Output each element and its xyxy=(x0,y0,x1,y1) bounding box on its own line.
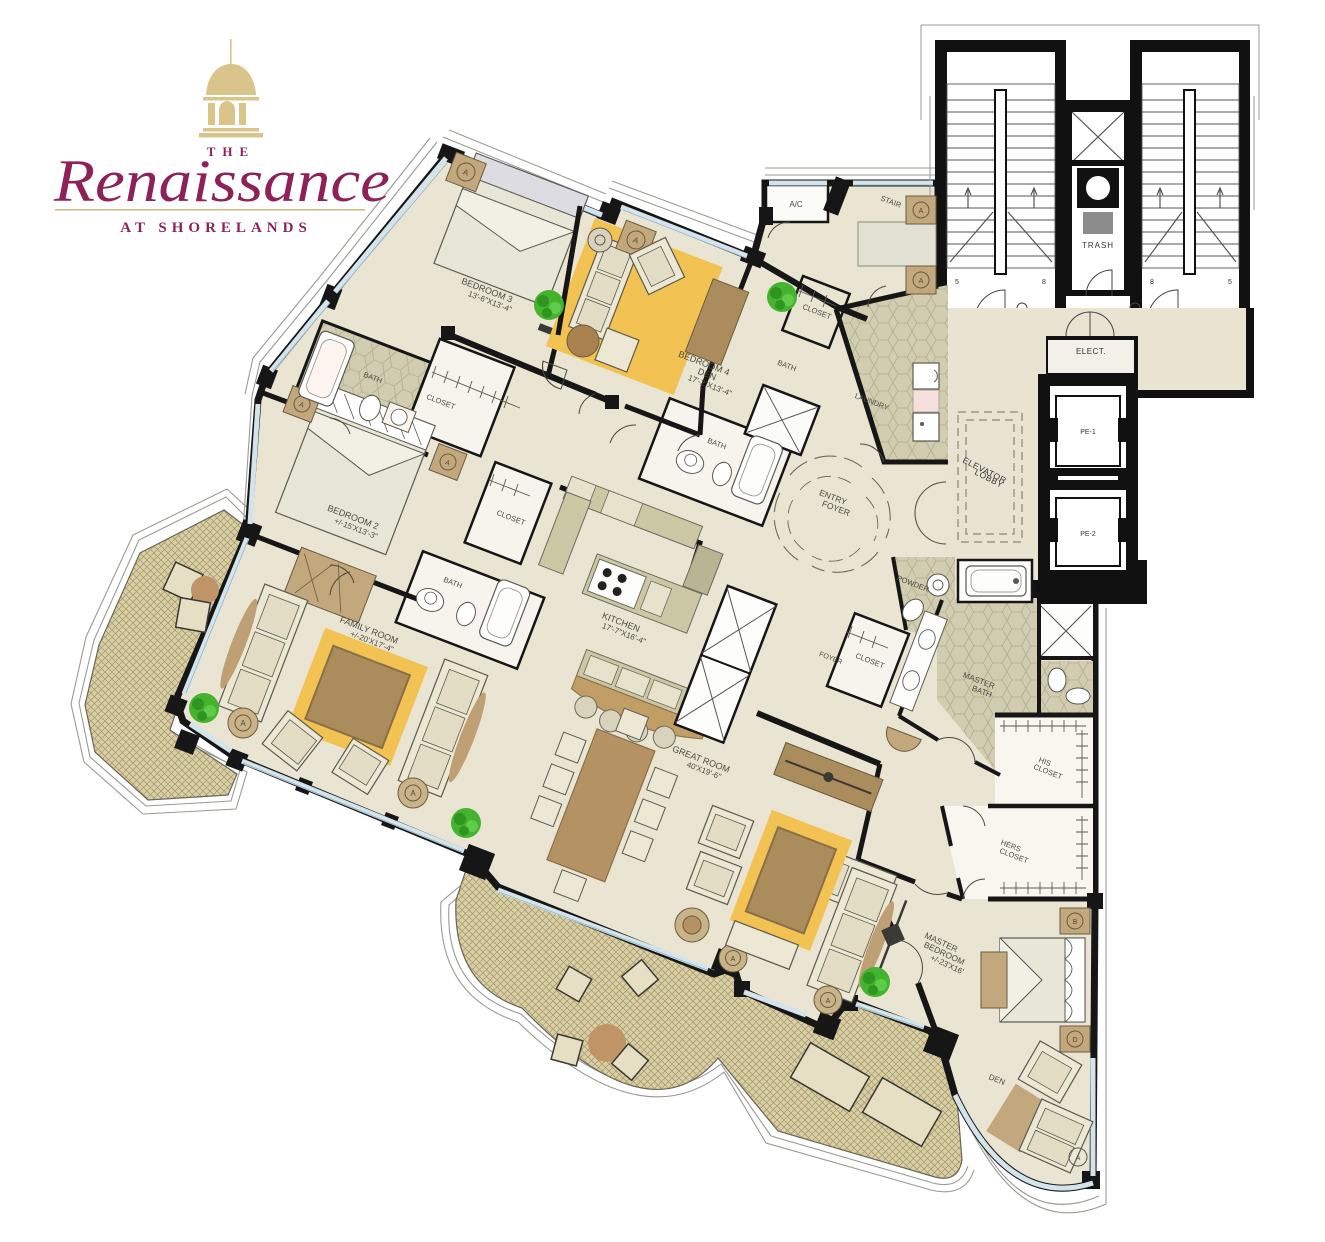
svg-text:PE-1: PE-1 xyxy=(1080,429,1096,436)
svg-text:8: 8 xyxy=(1150,279,1154,286)
svg-text:TRASH: TRASH xyxy=(1082,241,1114,250)
svg-text:A: A xyxy=(1076,1155,1081,1162)
svg-text:A: A xyxy=(410,789,416,798)
svg-text:AT SHORELANDS: AT SHORELANDS xyxy=(120,220,312,236)
svg-text:A: A xyxy=(826,998,831,1005)
svg-text:5: 5 xyxy=(955,279,959,286)
svg-text:8: 8 xyxy=(1042,279,1046,286)
svg-text:A: A xyxy=(919,208,924,215)
svg-text:B: B xyxy=(1073,919,1078,926)
svg-text:PE-2: PE-2 xyxy=(1080,531,1096,538)
svg-text:Renaissance: Renaissance xyxy=(53,148,390,214)
svg-text:5: 5 xyxy=(1228,279,1232,286)
svg-text:A: A xyxy=(240,719,246,728)
svg-text:A/C: A/C xyxy=(789,200,803,209)
svg-text:D: D xyxy=(1072,1037,1077,1044)
svg-text:ELECT.: ELECT. xyxy=(1076,347,1106,356)
svg-text:A: A xyxy=(731,956,736,963)
svg-text:A: A xyxy=(919,278,924,285)
